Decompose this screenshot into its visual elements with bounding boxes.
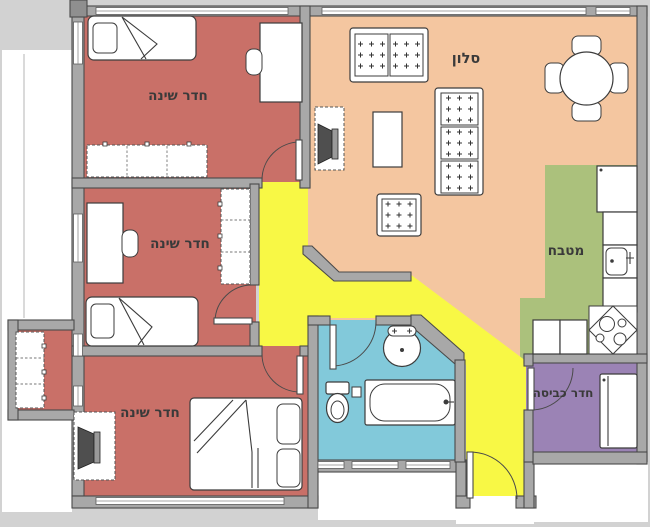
pillow xyxy=(93,23,117,53)
wall-fixture xyxy=(352,387,361,397)
window-alcove-opening-b xyxy=(74,386,83,406)
room-label-bedroom-3: חדר שינה xyxy=(120,405,180,421)
wall-entry-right xyxy=(524,460,534,508)
window-bathroom-bottom-c xyxy=(406,462,450,469)
burner xyxy=(600,317,615,332)
wall-corner-post xyxy=(70,0,87,17)
window-bedroom1-top xyxy=(96,8,288,15)
pillow xyxy=(277,449,300,487)
three-seat-sofa xyxy=(435,88,483,195)
tv-screen xyxy=(332,129,338,159)
window-alcove-opening-a xyxy=(74,334,83,356)
base-cabinet xyxy=(533,320,560,354)
window-dining-top xyxy=(596,8,630,15)
tv-cabinet xyxy=(315,107,344,170)
room-label-bedroom-2: חדר שינה xyxy=(150,236,210,252)
floor-plan: חדר שינה חדר שינה חדר שינה סלון מטבח חדר… xyxy=(0,0,650,527)
window-living-top xyxy=(322,8,586,15)
bathtub-faucet xyxy=(444,400,449,405)
tv-screen xyxy=(94,432,100,463)
tv xyxy=(78,427,94,469)
chair xyxy=(246,49,262,75)
floor-plan-canvas: חדר שינה חדר שינה חדר שינה סלון מטבח חדר… xyxy=(0,0,650,527)
double-bed xyxy=(190,398,302,490)
tv xyxy=(318,124,332,164)
stove xyxy=(589,306,637,354)
burner xyxy=(614,333,626,345)
kitchen-cabinet xyxy=(603,212,637,245)
wall-bathroom-left xyxy=(308,316,318,508)
room-label-bedroom-1: חדר שינה xyxy=(148,88,208,104)
wardrobe xyxy=(16,332,46,408)
tv-cabinet xyxy=(74,412,115,480)
kitchen-sink xyxy=(603,245,637,278)
bathtub xyxy=(365,380,455,425)
wall-laundry-left-a xyxy=(524,354,533,366)
chair xyxy=(122,230,138,257)
window-bedroom1-left xyxy=(74,22,83,64)
wall-laundry-bottom xyxy=(533,452,647,464)
wall-laundry-left-b xyxy=(524,410,533,462)
pillow xyxy=(91,304,114,338)
wall-bedroom2-right-a xyxy=(250,184,259,285)
dining-table xyxy=(560,52,613,105)
toilet xyxy=(326,382,349,423)
single-bed xyxy=(88,16,196,60)
single-bed xyxy=(86,297,198,346)
wall-bathroom-right xyxy=(455,360,465,462)
washing-machine xyxy=(600,374,637,448)
wall-bathroom-top-a xyxy=(308,316,330,325)
armchair xyxy=(377,194,421,236)
window-bathroom-bottom-a xyxy=(318,462,344,469)
room-label-living: סלון xyxy=(452,51,481,67)
burner xyxy=(596,334,604,342)
wardrobe xyxy=(87,142,207,177)
pillow xyxy=(277,404,300,444)
wall-exterior-right xyxy=(637,6,647,464)
wall-bathroom-top-b xyxy=(376,316,416,325)
coffee-table xyxy=(373,112,402,167)
wall-bedroom2-bedroom3-a xyxy=(72,346,262,356)
room-label-kitchen: מטבח xyxy=(548,243,584,259)
bathroom-sink xyxy=(384,326,421,367)
base-cabinet xyxy=(560,320,587,354)
wardrobe xyxy=(218,189,250,284)
burner xyxy=(618,319,626,327)
room-label-laundry: חדר כביסה xyxy=(533,386,594,400)
fridge xyxy=(597,166,637,212)
wall-kitchen-laundry xyxy=(524,354,647,363)
wall-bedroom1-bottom-a xyxy=(72,178,262,188)
loveseat-sofa xyxy=(350,28,428,82)
window-bedroom3-bottom xyxy=(96,498,284,505)
window-bedroom2-left xyxy=(74,214,83,262)
window-bathroom-bottom-b xyxy=(352,462,398,469)
laundry-fixtures xyxy=(600,374,637,448)
